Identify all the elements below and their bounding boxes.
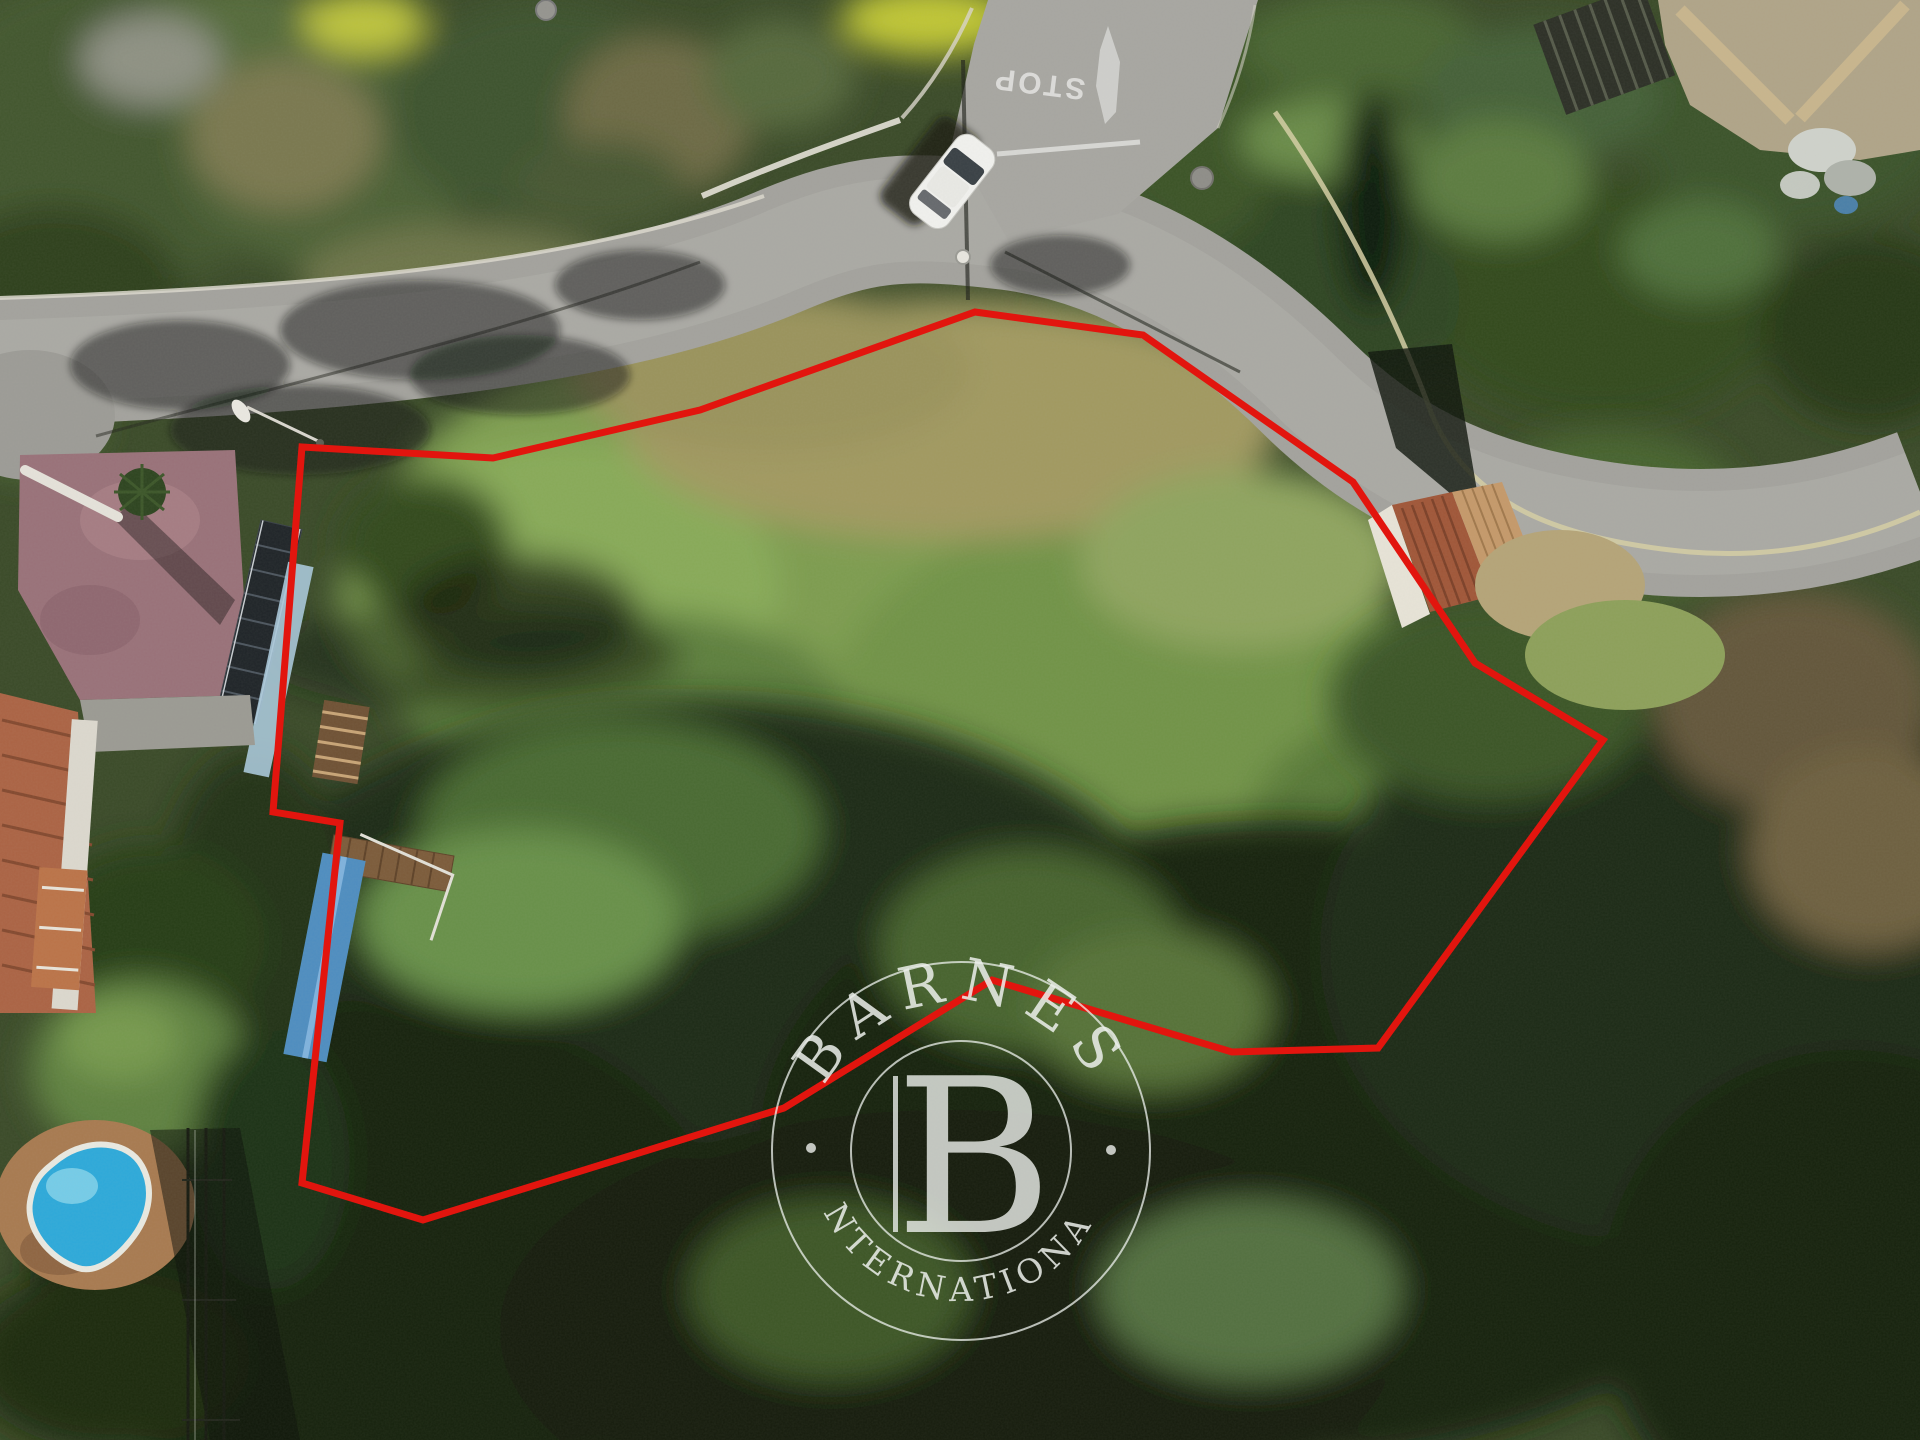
watermark-dot-left [806, 1143, 816, 1153]
aerial-photo: STOP [0, 0, 1920, 1440]
watermark-dot-right [1106, 1145, 1116, 1155]
watermark-monogram-bar [893, 1076, 898, 1232]
aerial-photo-stage: STOP [0, 0, 1920, 1440]
watermark-monogram: B [895, 1032, 1053, 1283]
